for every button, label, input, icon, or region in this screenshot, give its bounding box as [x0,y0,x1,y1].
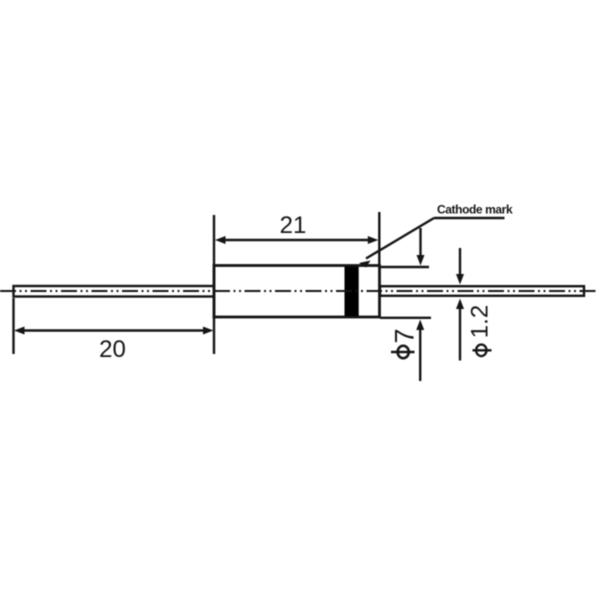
svg-text:20: 20 [99,336,126,363]
svg-text:7: 7 [390,328,420,343]
svg-text:1.2: 1.2 [467,305,494,338]
svg-text:Cathode mark: Cathode mark [437,203,513,217]
svg-text:21: 21 [280,212,307,239]
